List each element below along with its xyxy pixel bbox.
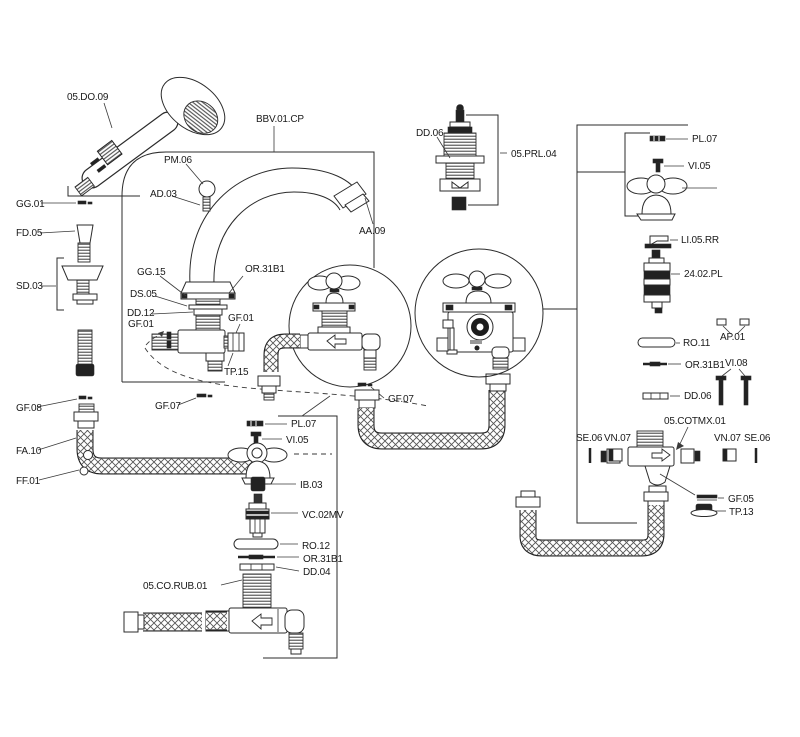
diverter-knob-part: [199, 181, 215, 197]
prl-cartridge-group: [436, 105, 507, 211]
elbow-swivel-joint: [84, 451, 93, 460]
part-label-bbv: BBV.01.CP: [256, 114, 304, 125]
part-label-vn07-right: VN.07: [714, 433, 741, 444]
part-label-or31b1-a: OR.31B1: [245, 264, 285, 275]
part-label-do09: 05.DO.09: [67, 92, 109, 103]
part-label-se06-right: SE.06: [744, 433, 771, 444]
part-label-sd03: SD.03: [16, 281, 43, 292]
part-label-pl07-mid: PL.07: [291, 419, 317, 430]
part-label-or31b1-b: OR.31B1: [685, 360, 725, 371]
part-label-vi05-right: VI.05: [688, 161, 711, 172]
cartridge-body: [444, 133, 476, 159]
handshower-group: [68, 66, 236, 196]
part-label-gf01-left: GF.01: [128, 319, 154, 330]
tiny-markings: [470, 340, 482, 344]
cross-handle-icon: [469, 271, 485, 287]
part-label-se06-left: SE.06: [576, 433, 603, 444]
part-label-prl04: 05.PRL.04: [511, 149, 557, 160]
part-label-ro11: RO.11: [683, 338, 711, 349]
part-label-gf07-right: GF.07: [388, 394, 414, 405]
small-gasket-part: [79, 396, 86, 399]
part-label-gf07-left: GF.07: [155, 401, 181, 412]
detail-circle-valve: [258, 265, 411, 400]
cone-washer-part: [77, 225, 93, 243]
escutcheon-part: [62, 266, 103, 280]
part-label-tp15: TP.15: [224, 367, 249, 378]
part-label-gg15: GG.15: [137, 267, 166, 278]
u-hose-center: [366, 374, 510, 441]
part-label-fd05: FD.05: [16, 228, 43, 239]
gf01-gasket-part: [167, 332, 171, 339]
gasket-part: [78, 201, 86, 204]
threaded-shank-part: [243, 574, 271, 608]
part-label-dd06-top: DD.06: [416, 128, 444, 139]
exploded-parts-diagram: 05.DO.09 BBV.01.CP PM.06 AD.03 GG.01 AA.…: [0, 0, 800, 737]
part-label-cotmx: 05.COTMX.01: [664, 416, 726, 427]
part-label-aa09: AA.09: [359, 226, 386, 237]
part-label-corub: 05.CO.RUB.01: [143, 581, 208, 592]
base-flange-part: [181, 293, 235, 299]
left-parts-column: [37, 201, 103, 407]
part-label-gf08: GF.08: [16, 403, 42, 414]
part-label-ib03: IB.03: [300, 480, 323, 491]
part-label-ds05: DS.05: [130, 289, 157, 300]
part-label-dd12: DD.12: [127, 308, 155, 319]
part-label-ad03: AD.03: [150, 189, 177, 200]
part-label-gg01: GG.01: [16, 199, 45, 210]
part-label-vi08: VI.08: [725, 358, 748, 369]
detail-circle-diverter: [415, 249, 577, 377]
part-label-gf05: GF.05: [728, 494, 754, 505]
part-label-fa10: FA.10: [16, 446, 42, 457]
cross-handle-icon: [647, 175, 665, 193]
part-label-gf01-right: GF.01: [228, 313, 254, 324]
part-label-tp13: TP.13: [729, 507, 754, 518]
part-label-or31b1-c: OR.31B1: [303, 554, 343, 565]
part-label-vi05-mid: VI.05: [286, 435, 309, 446]
part-label-dd04: DD.04: [303, 567, 331, 578]
part-label-ro12: RO.12: [302, 541, 331, 552]
part-label-vc02mv: VC.02MV: [302, 510, 344, 521]
part-label-dd06-right: DD.06: [684, 391, 712, 402]
part-label-2402pl: 24.02.PL: [684, 269, 723, 280]
part-label-pl07-right: PL.07: [692, 134, 718, 145]
flex-hose-left: [38, 404, 260, 480]
part-label-vn07-left: VN.07: [604, 433, 631, 444]
part-label-ap01: AP.01: [720, 332, 746, 343]
valve-tee-body: [178, 330, 225, 353]
diagram-canvas: 05.DO.09 BBV.01.CP PM.06 AD.03 GG.01 AA.…: [0, 0, 800, 737]
part-label-pm06: PM.06: [164, 155, 193, 166]
part-label-ff01: FF.01: [16, 476, 41, 487]
threaded-stud-part: [78, 330, 92, 365]
cotmx-valve-group: [516, 427, 756, 548]
cross-handle-icon: [326, 273, 342, 289]
part-label-li05rr: LI.05.RR: [681, 235, 719, 246]
